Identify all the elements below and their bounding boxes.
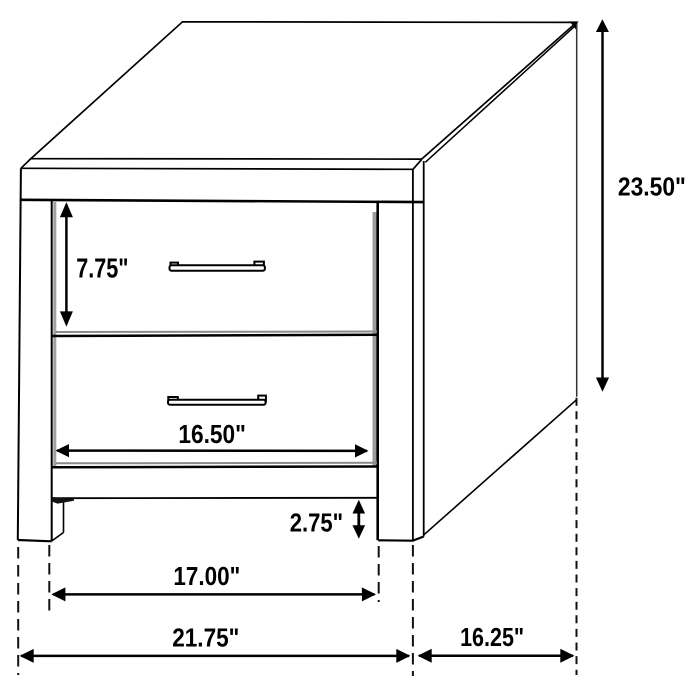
svg-text:2.75": 2.75"	[290, 508, 343, 538]
svg-text:16.50": 16.50"	[178, 419, 246, 449]
svg-text:7.75": 7.75"	[76, 252, 128, 283]
svg-text:17.00": 17.00"	[173, 561, 240, 591]
svg-text:21.75": 21.75"	[172, 623, 239, 653]
svg-text:16.25": 16.25"	[460, 622, 524, 652]
svg-text:23.50": 23.50"	[618, 171, 686, 201]
